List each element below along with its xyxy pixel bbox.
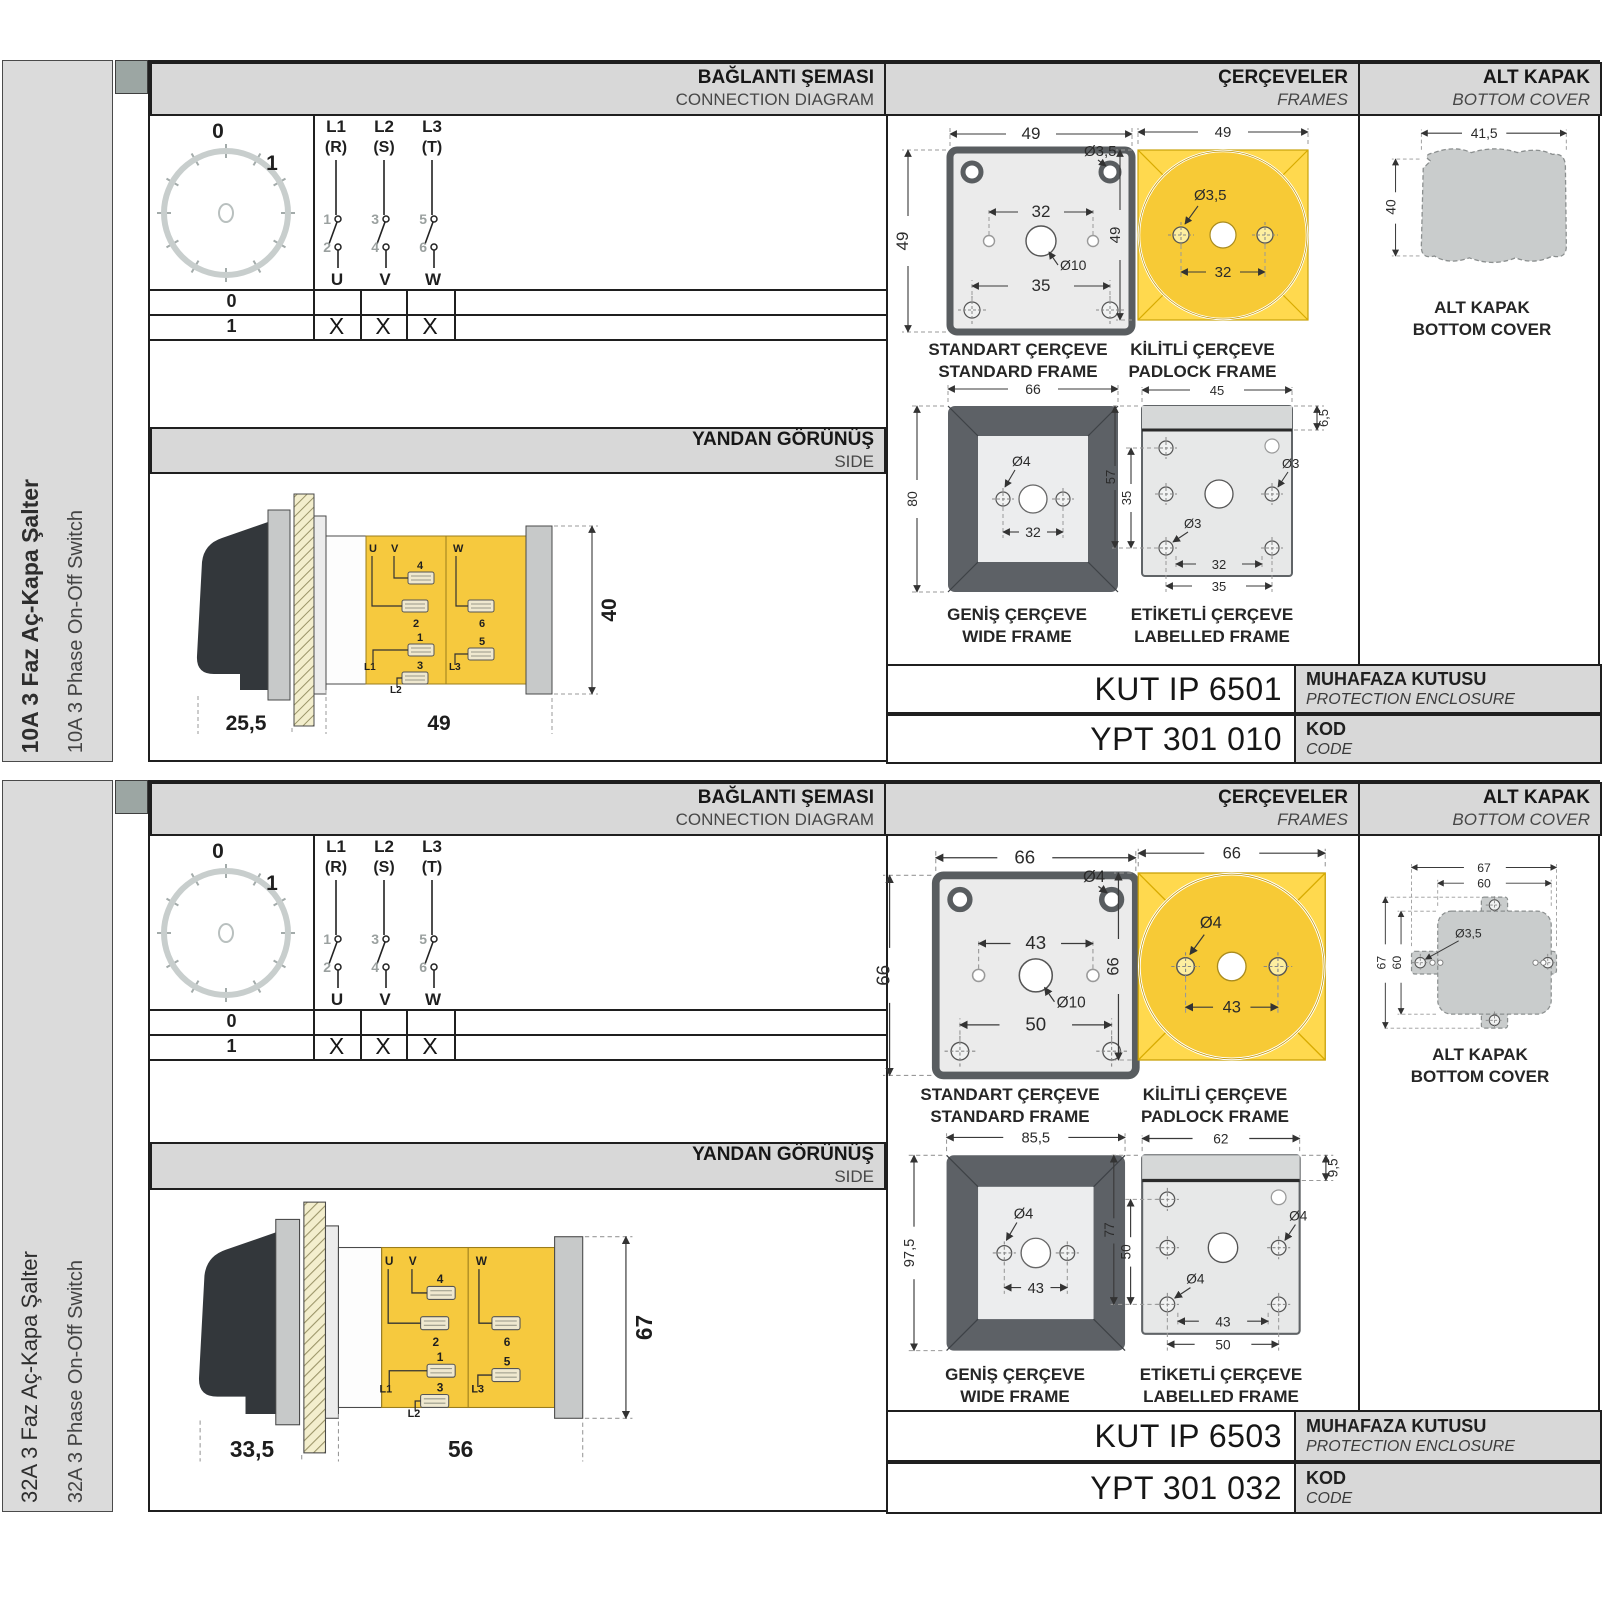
product-panel: BAĞLANTI ŞEMASI CONNECTION DIAGRAM ÇERÇE… [148,780,1600,1512]
header-cover-en: BOTTOM COVER [1452,810,1590,830]
mounting-plate [276,1219,300,1424]
terminal-u: U [369,543,377,555]
dial-position-0: 0 [212,840,224,863]
contact-bottom-label: 4 [371,959,379,975]
contact-top-label: 5 [419,211,427,227]
dim-width: 62 [1213,1132,1228,1147]
dim-hole-span: 43 [1025,932,1046,953]
enclosure-code-row: KUT IP 6503 MUHAFAZA KUTUSU PROTECTION E… [886,1410,1602,1462]
table-mark: X [406,1034,454,1059]
dim-screw-dia: Ø4 [1014,1206,1034,1222]
panel-hatched [304,1202,326,1453]
phase-label: (S) [373,139,394,156]
header-side-tr: YANDAN GÖRÜNÜŞ [692,429,874,452]
terminal-label: W [425,990,442,1009]
dim-knob-depth: 33,5 [230,1436,274,1462]
caption-tr: KİLİTLİ ÇERÇEVE [1105,1084,1325,1106]
contact-bottom-label: 6 [419,239,427,255]
padlock-frame-drawing: Ø4 43 66 66 [1105,840,1331,1071]
shaft-hole [1021,1238,1050,1267]
table-mark [360,289,406,314]
table-mark: X [360,1034,406,1059]
dim-shaft-dia: Ø10 [1060,257,1087,273]
dim-screw-dia: Ø4 [1200,914,1222,932]
end-plate [526,526,552,694]
dim-knob-depth: 25,5 [226,712,267,735]
body-front [338,1248,381,1408]
table-mark: X [406,314,454,339]
table-mark [313,289,360,314]
terminal-4: 4 [417,560,424,572]
header-cover-tr: ALT KAPAK [1483,67,1590,90]
code-label-tr: KOD [1306,719,1590,741]
dim-shaft-dia: Ø10 [1057,994,1086,1011]
dim-width: 49 [1022,124,1041,143]
dim-height: 57 [1103,470,1118,484]
phase-l3: L3 (T) 5 6 W [419,117,442,289]
dim-hole-dia-mid: Ø3 [1282,456,1299,471]
label-strip [1142,406,1292,430]
grid-line [150,1059,886,1061]
frame-plate [325,1226,338,1418]
product-sidebar: 10A 3 Faz Aç-Kapa Şalter 10A 3 Phase On-… [2,60,113,762]
enclosure-label-tr: MUHAFAZA KUTUSU [1306,1416,1590,1438]
dim-span-inner: 43 [1215,1314,1230,1329]
side-view-drawing: U V W 4 2 1 3 6 5 L1 L2 L3 33,5 56 67 [172,1187,680,1468]
dim-screw-dia: Ø3,5 [1194,187,1227,204]
header-cover-tr: ALT KAPAK [1483,787,1590,810]
phase-label: (R) [325,139,347,156]
caption-labelled-frame: ETİKETLİ ÇERÇEVE LABELLED FRAME [1098,1364,1344,1408]
contact-diagram: L1 (R) 1 2 U L2 (S) 3 4 V L3 ( [308,836,468,1011]
dim-label-height: 9,5 [1325,1158,1340,1177]
contact-bottom-label: 4 [371,239,379,255]
dial-position-0: 0 [212,120,224,143]
code-label: KOD CODE [1296,1462,1602,1514]
header-frames: ÇERÇEVELER FRAMES [884,782,1360,836]
grid-line [454,289,456,339]
dim-width: 49 [1215,124,1232,141]
shaft-hole [1019,485,1047,513]
code-label-en: CODE [1306,740,1590,759]
header-frames-tr: ÇERÇEVELER [1218,787,1348,810]
dim-span-outer: 50 [1215,1338,1231,1353]
shaft-hole [1026,226,1056,256]
code-label-en: CODE [1306,1489,1590,1508]
table-position-0: 0 [150,289,313,314]
enclosure-label: MUHAFAZA KUTUSU PROTECTION ENCLOSURE [1296,1410,1602,1462]
dim-height-outer: 67 [1374,956,1388,970]
shaft-hole [1210,222,1236,248]
contact-bottom-label: 6 [419,959,427,975]
panel-hatched [294,494,314,726]
terminal-label: V [379,990,391,1009]
dim-height: 49 [1107,227,1124,244]
dim-screw-span: 32 [1025,524,1041,540]
contact-top-label: 3 [371,931,379,947]
enclosure-label: MUHAFAZA KUTUSU PROTECTION ENCLOSURE [1296,664,1602,714]
header-bottom-cover: ALT KAPAK BOTTOM COVER [1358,62,1602,116]
contact-diagram: L1 (R) 1 2 U L2 (S) 3 4 V L3 ( [308,116,468,291]
dial-shaft [219,924,233,942]
contact-top-label: 1 [323,211,331,227]
phase-label: (S) [373,859,394,876]
table-mark [406,1009,454,1034]
dim-label-height: 6,5 [1316,409,1331,427]
order-code-row: YPT 301 010 KOD CODE [886,714,1602,764]
rotary-dial-diagram: 0 1 [154,118,304,288]
terminal-1: 1 [437,1350,444,1364]
enclosure-code-row: KUT IP 6501 MUHAFAZA KUTUSU PROTECTION E… [886,664,1602,714]
caption-padlock-frame: KİLİTLİ ÇERÇEVE PADLOCK FRAME [1095,339,1310,383]
enclosure-label-en: PROTECTION ENCLOSURE [1306,1437,1590,1456]
code-label: KOD CODE [1296,714,1602,764]
labelled-frame-drawing: 62 9,5 77 50 Ø4 Ø4 43 50 [1100,1128,1346,1359]
terminal-1: 1 [417,632,423,644]
dim-height: 40 [1383,199,1399,215]
dim-width: 66 [1025,381,1041,397]
terminal-3: 3 [437,1380,444,1394]
dial-position-1: 1 [266,872,278,895]
contact-top-label: 1 [323,931,331,947]
phase-line-label: L2 [374,837,394,856]
dim-screw-dia: Ø4 [1012,453,1031,469]
caption-tr: STANDART ÇERÇEVE [880,1084,1140,1106]
table-position-1: 1 [150,1034,313,1059]
table-mark: X [313,1034,360,1059]
caption-tr: ETİKETLİ ÇERÇEVE [1095,604,1329,626]
shaft-hole [1019,959,1052,992]
terminal-label: V [379,270,391,289]
table-position-1: 1 [150,314,313,339]
table-mark [360,1009,406,1034]
table-mark: X [360,314,406,339]
side-view-drawing: U V W 4 2 1 3 6 5 L1 L2 L3 25,5 49 40 [172,480,642,740]
enclosure-code: KUT IP 6503 [886,1410,1296,1462]
terminal-l1: L1 [380,1383,393,1395]
phase-label: (T) [422,859,442,876]
order-code-row: YPT 301 032 KOD CODE [886,1462,1602,1514]
enclosure-label-tr: MUHAFAZA KUTUSU [1306,669,1590,691]
table-mark [406,289,454,314]
order-code: YPT 301 010 [886,714,1296,764]
product-name-en: 10A 3 Phase On-Off Switch [65,510,88,753]
labelled-frame-drawing: 45 6,5 57 35 Ø3 Ø3 32 35 [1102,380,1336,600]
phase-l2: L2 (S) 3 4 V [371,117,394,289]
dim-height: 49 [893,232,912,251]
header-side-view: YANDAN GÖRÜNÜŞ SIDE [150,427,886,474]
terminal-l3: L3 [449,662,461,673]
product-name-tr: 10A 3 Faz Aç-Kapa Şalter [17,479,44,753]
dial-position-1: 1 [266,152,278,175]
caption-padlock-frame: KİLİTLİ ÇERÇEVE PADLOCK FRAME [1105,1084,1325,1128]
caption-bottom-cover: ALT KAPAK BOTTOM COVER [1362,297,1602,341]
phase-label: (R) [325,859,347,876]
dim-height: 66 [873,965,894,986]
terminal-l3: L3 [471,1383,484,1395]
caption-en: BOTTOM COVER [1358,1066,1602,1088]
order-code: YPT 301 032 [886,1462,1296,1514]
phase-l1: L1 (R) 1 2 U [323,837,347,1009]
caption-labelled-frame: ETİKETLİ ÇERÇEVE LABELLED FRAME [1095,604,1329,648]
phase-line-label: L2 [374,117,394,136]
phase-line-label: L3 [422,117,442,136]
dim-width: 41,5 [1471,125,1498,141]
dim-span-outer: 35 [1212,579,1226,594]
terminal-v: V [409,1254,417,1268]
enclosure-label-en: PROTECTION ENCLOSURE [1306,690,1590,709]
product-block-32a: 32A 3 Faz Aç-Kapa Şalter 32A 3 Phase On-… [0,780,1623,1512]
bottom-cover-drawing: 41,5 40 [1366,122,1606,293]
dim-height: 77 [1102,1222,1117,1237]
phase-l3: L3 (T) 5 6 W [419,837,442,1009]
dim-height: 66 [1104,957,1122,975]
frame-plate [314,516,326,694]
dim-width: 85,5 [1022,1131,1051,1147]
product-name-tr: 32A 3 Faz Aç-Kapa Şalter [17,1251,43,1503]
terminal-label: U [331,270,343,289]
contact-bottom-label: 2 [323,239,331,255]
dim-width: 66 [1223,845,1241,863]
dim-width: 66 [1014,846,1035,867]
terminal-5: 5 [479,636,485,648]
contact-top-label: 5 [419,931,427,947]
terminal-5: 5 [504,1354,511,1368]
divider-frames-cover [1358,836,1360,1410]
corner-marker [115,780,148,814]
corner-marker [115,60,148,94]
dim-screw-span: 43 [1223,999,1241,1017]
dim-width: 45 [1210,383,1224,398]
terminal-4: 4 [437,1272,444,1286]
caption-en: STANDARD FRAME [880,1106,1140,1128]
header-connection-en: CONNECTION DIAGRAM [676,90,874,110]
product-sidebar: 32A 3 Faz Aç-Kapa Şalter 32A 3 Phase On-… [2,780,113,1512]
phase-l1: L1 (R) 1 2 U [323,117,347,289]
dim-hole-span: 32 [1032,202,1051,221]
header-connection-en: CONNECTION DIAGRAM [676,810,874,830]
header-connection-diagram: BAĞLANTI ŞEMASI CONNECTION DIAGRAM [150,782,886,836]
bottom-cover-drawing: Ø3,5 67 60 67 60 [1366,857,1602,1036]
terminal-l2: L2 [390,685,402,696]
header-frames-en: FRAMES [1277,90,1348,110]
product-name-en: 32A 3 Phase On-Off Switch [65,1260,88,1503]
dim-hole-height: 50 [1119,1244,1134,1260]
grid-line [150,339,886,341]
header-connection-tr: BAĞLANTI ŞEMASI [698,787,874,810]
wide-frame-drawing: Ø4 32 66 80 [902,380,1132,600]
phase-label: (T) [422,139,442,156]
terminal-l1: L1 [364,662,376,673]
caption-tr: ALT KAPAK [1358,1044,1602,1066]
header-frames: ÇERÇEVELER FRAMES [884,62,1360,116]
contact-bottom-label: 2 [323,959,331,975]
dim-screw-span: 35 [1032,276,1051,295]
caption-en: LABELLED FRAME [1095,626,1329,648]
terminal-6: 6 [479,618,485,630]
product-block-10a: 10A 3 Faz Aç-Kapa Şalter 10A 3 Phase On-… [0,60,1623,762]
mounting-plate [268,510,290,700]
terminal-6: 6 [504,1335,511,1349]
dim-screw-dia: Ø4 [1083,868,1105,886]
dim-hole-height: 35 [1119,491,1134,505]
caption-en: BOTTOM COVER [1362,319,1602,341]
terminal-u: U [385,1254,394,1268]
dim-hole-dia-low: Ø4 [1186,1271,1205,1286]
terminal-2: 2 [413,618,419,630]
dim-width-inner: 60 [1477,877,1491,891]
header-side-en: SIDE [834,452,874,472]
table-mark [313,1009,360,1034]
dim-screw-span: 50 [1025,1013,1046,1034]
header-frames-tr: ÇERÇEVELER [1218,67,1348,90]
terminal-w: W [476,1254,488,1268]
dim-screw-span: 32 [1215,264,1232,281]
dim-height: 67 [631,1315,657,1340]
code-label-tr: KOD [1306,1468,1590,1490]
header-cover-en: BOTTOM COVER [1452,90,1590,110]
header-connection-tr: BAĞLANTI ŞEMASI [698,67,874,90]
body-front [326,536,366,684]
dim-hole-dia: Ø3,5 [1455,926,1482,940]
header-side-view: YANDAN GÖRÜNÜŞ SIDE [150,1142,886,1190]
caption-bottom-cover: ALT KAPAK BOTTOM COVER [1358,1044,1602,1088]
dim-body-depth: 49 [427,712,450,735]
phase-line-label: L1 [326,117,346,136]
table-mark: X [313,314,360,339]
header-side-en: SIDE [834,1167,874,1187]
dim-height-inner: 60 [1390,956,1404,970]
terminal-2: 2 [432,1335,439,1349]
divider-frames-cover [1358,116,1360,664]
terminal-v: V [391,543,399,555]
enclosure-code: KUT IP 6501 [886,664,1296,714]
switch-knob [199,1232,276,1414]
phase-line-label: L3 [422,837,442,856]
switch-knob [197,522,268,690]
caption-standard-frame: STANDART ÇERÇEVE STANDARD FRAME [880,1084,1140,1128]
caption-en: PADLOCK FRAME [1105,1106,1325,1128]
catalog-page: { "headers": { "connection": {"tr": "BAĞ… [0,0,1623,1623]
dim-span-inner: 32 [1212,557,1226,572]
dim-body-depth: 56 [448,1436,473,1462]
contact-top-label: 3 [371,211,379,227]
phase-l2: L2 (S) 3 4 V [371,837,394,1009]
caption-tr: ALT KAPAK [1362,297,1602,319]
caption-en: LABELLED FRAME [1098,1386,1344,1408]
dim-hole-dia-low: Ø3 [1184,516,1201,531]
shaft-hole [1217,952,1246,981]
caption-tr: KİLİTLİ ÇERÇEVE [1095,339,1310,361]
header-frames-en: FRAMES [1277,810,1348,830]
terminal-label: W [425,270,442,289]
cover-shape [1421,149,1566,263]
table-position-0: 0 [150,1009,313,1034]
terminal-l2: L2 [408,1408,421,1420]
shaft-hole [1208,1233,1237,1262]
end-plate [555,1237,583,1419]
product-panel: BAĞLANTI ŞEMASI CONNECTION DIAGRAM ÇERÇE… [148,60,1600,762]
dim-width-outer: 67 [1477,861,1491,875]
header-side-tr: YANDAN GÖRÜNÜŞ [692,1144,874,1167]
dim-hole-dia-mid: Ø4 [1289,1208,1308,1223]
dial-shaft [219,204,233,222]
terminal-label: U [331,990,343,1009]
dim-height: 97,5 [902,1239,918,1268]
grid-line [454,1009,456,1059]
shaft-hole [1205,480,1233,508]
header-connection-diagram: BAĞLANTI ŞEMASI CONNECTION DIAGRAM [150,62,886,116]
caption-tr: ETİKETLİ ÇERÇEVE [1098,1364,1344,1386]
phase-line-label: L1 [326,837,346,856]
rotary-dial-diagram: 0 1 [154,838,304,1008]
dim-height: 80 [904,491,920,507]
dim-screw-span: 43 [1028,1281,1044,1297]
header-bottom-cover: ALT KAPAK BOTTOM COVER [1358,782,1602,836]
terminal-3: 3 [417,660,423,672]
label-strip [1142,1155,1300,1180]
padlock-frame-drawing: Ø3,5 32 49 49 [1108,120,1313,330]
dim-height: 40 [598,598,621,621]
terminal-w: W [453,543,464,555]
